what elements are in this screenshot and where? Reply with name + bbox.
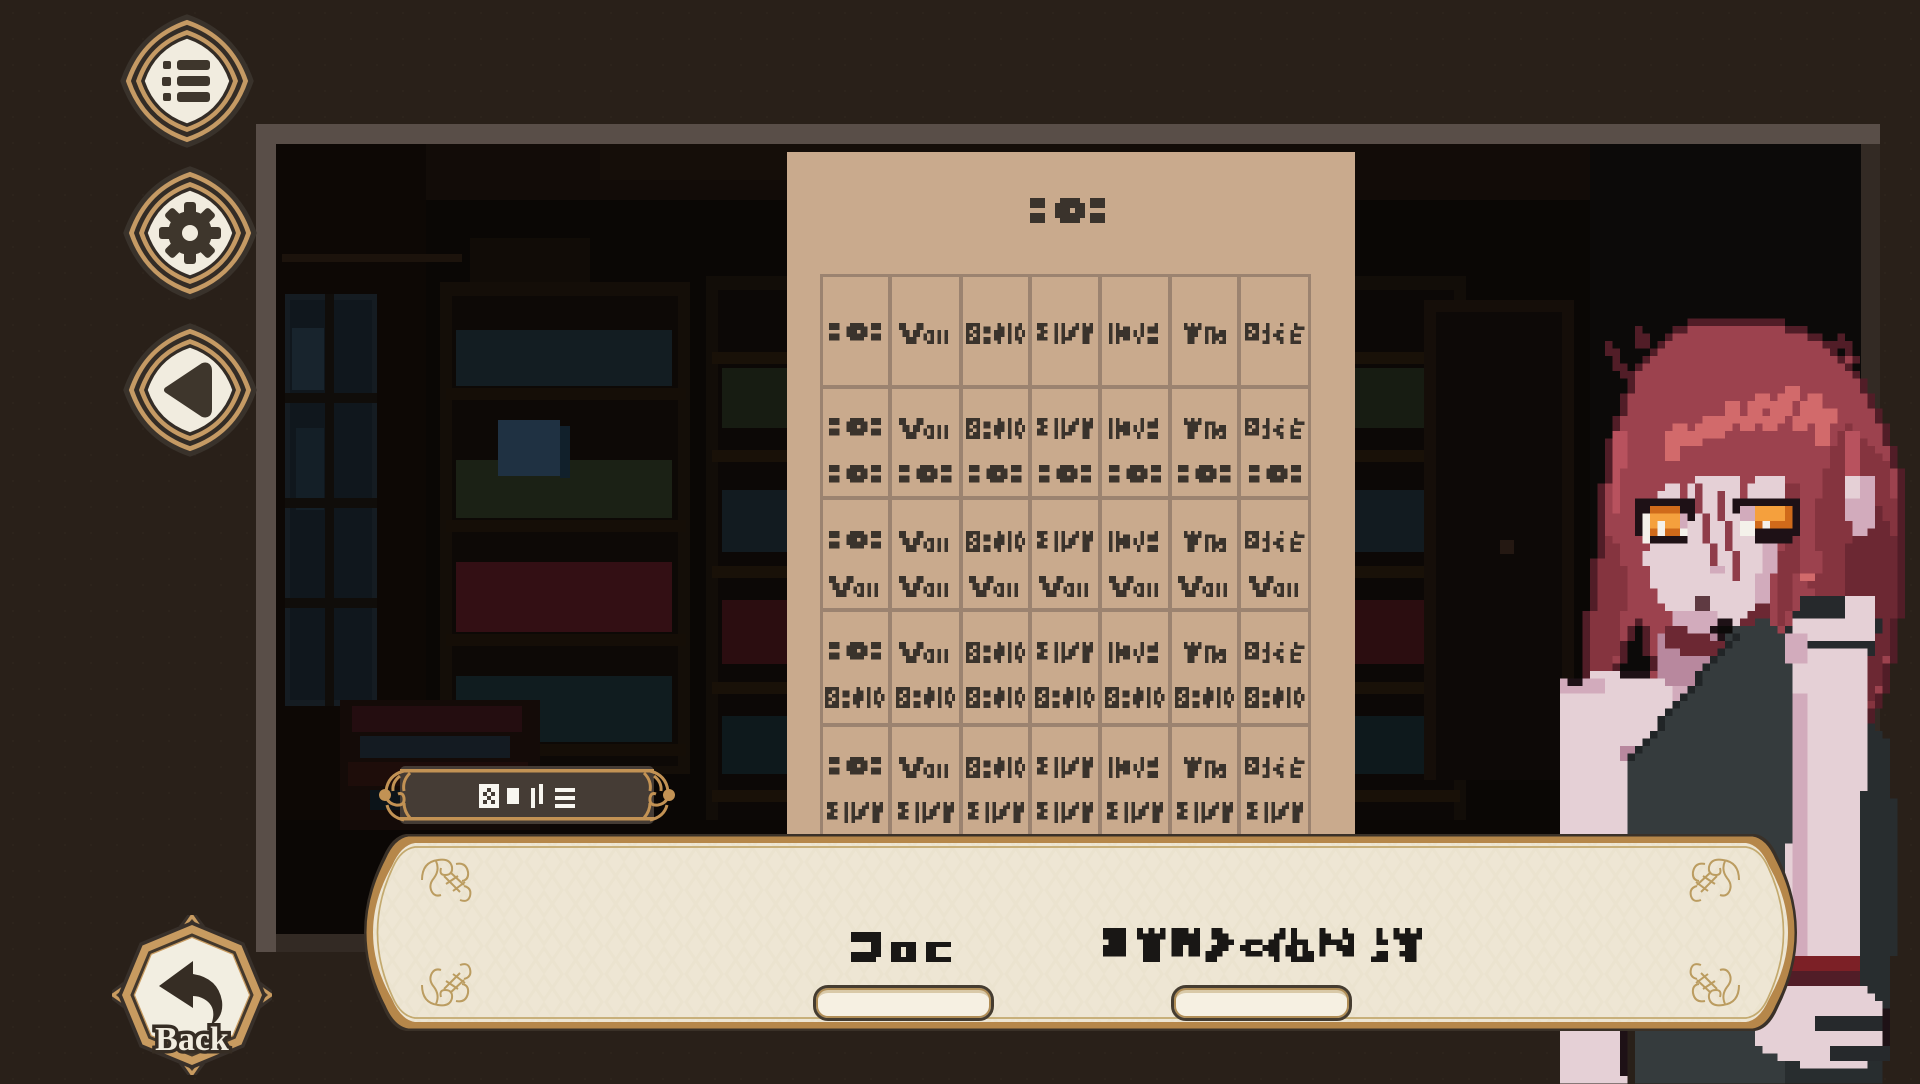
svg-text:Back: Back <box>155 1021 229 1058</box>
